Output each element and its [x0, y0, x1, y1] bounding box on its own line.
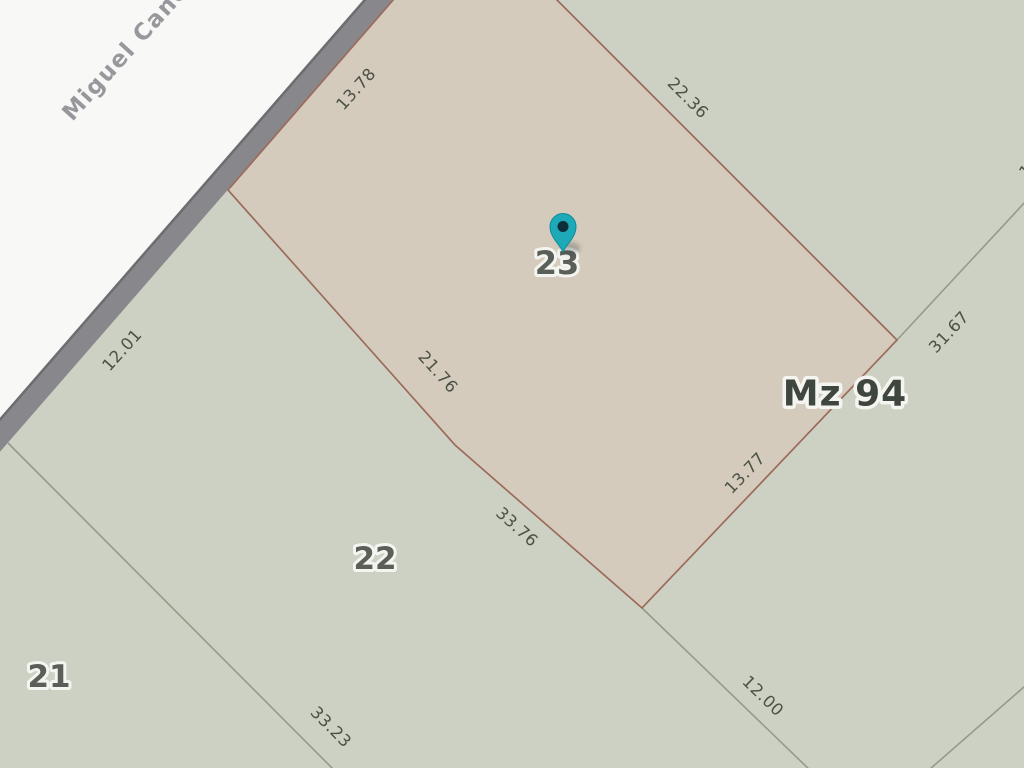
parcel-22-number: 22 [353, 541, 396, 577]
map-viewport[interactable]: Miguel Cané 13.78 22.36 12.01 21.76 31.6… [0, 0, 1024, 768]
pin-center-dot [558, 221, 569, 232]
map-canvas[interactable]: Miguel Cané 13.78 22.36 12.01 21.76 31.6… [0, 0, 1024, 768]
parcel-21-number: 21 [27, 659, 70, 695]
block-label-mz-94: Mz 94 [783, 374, 907, 415]
